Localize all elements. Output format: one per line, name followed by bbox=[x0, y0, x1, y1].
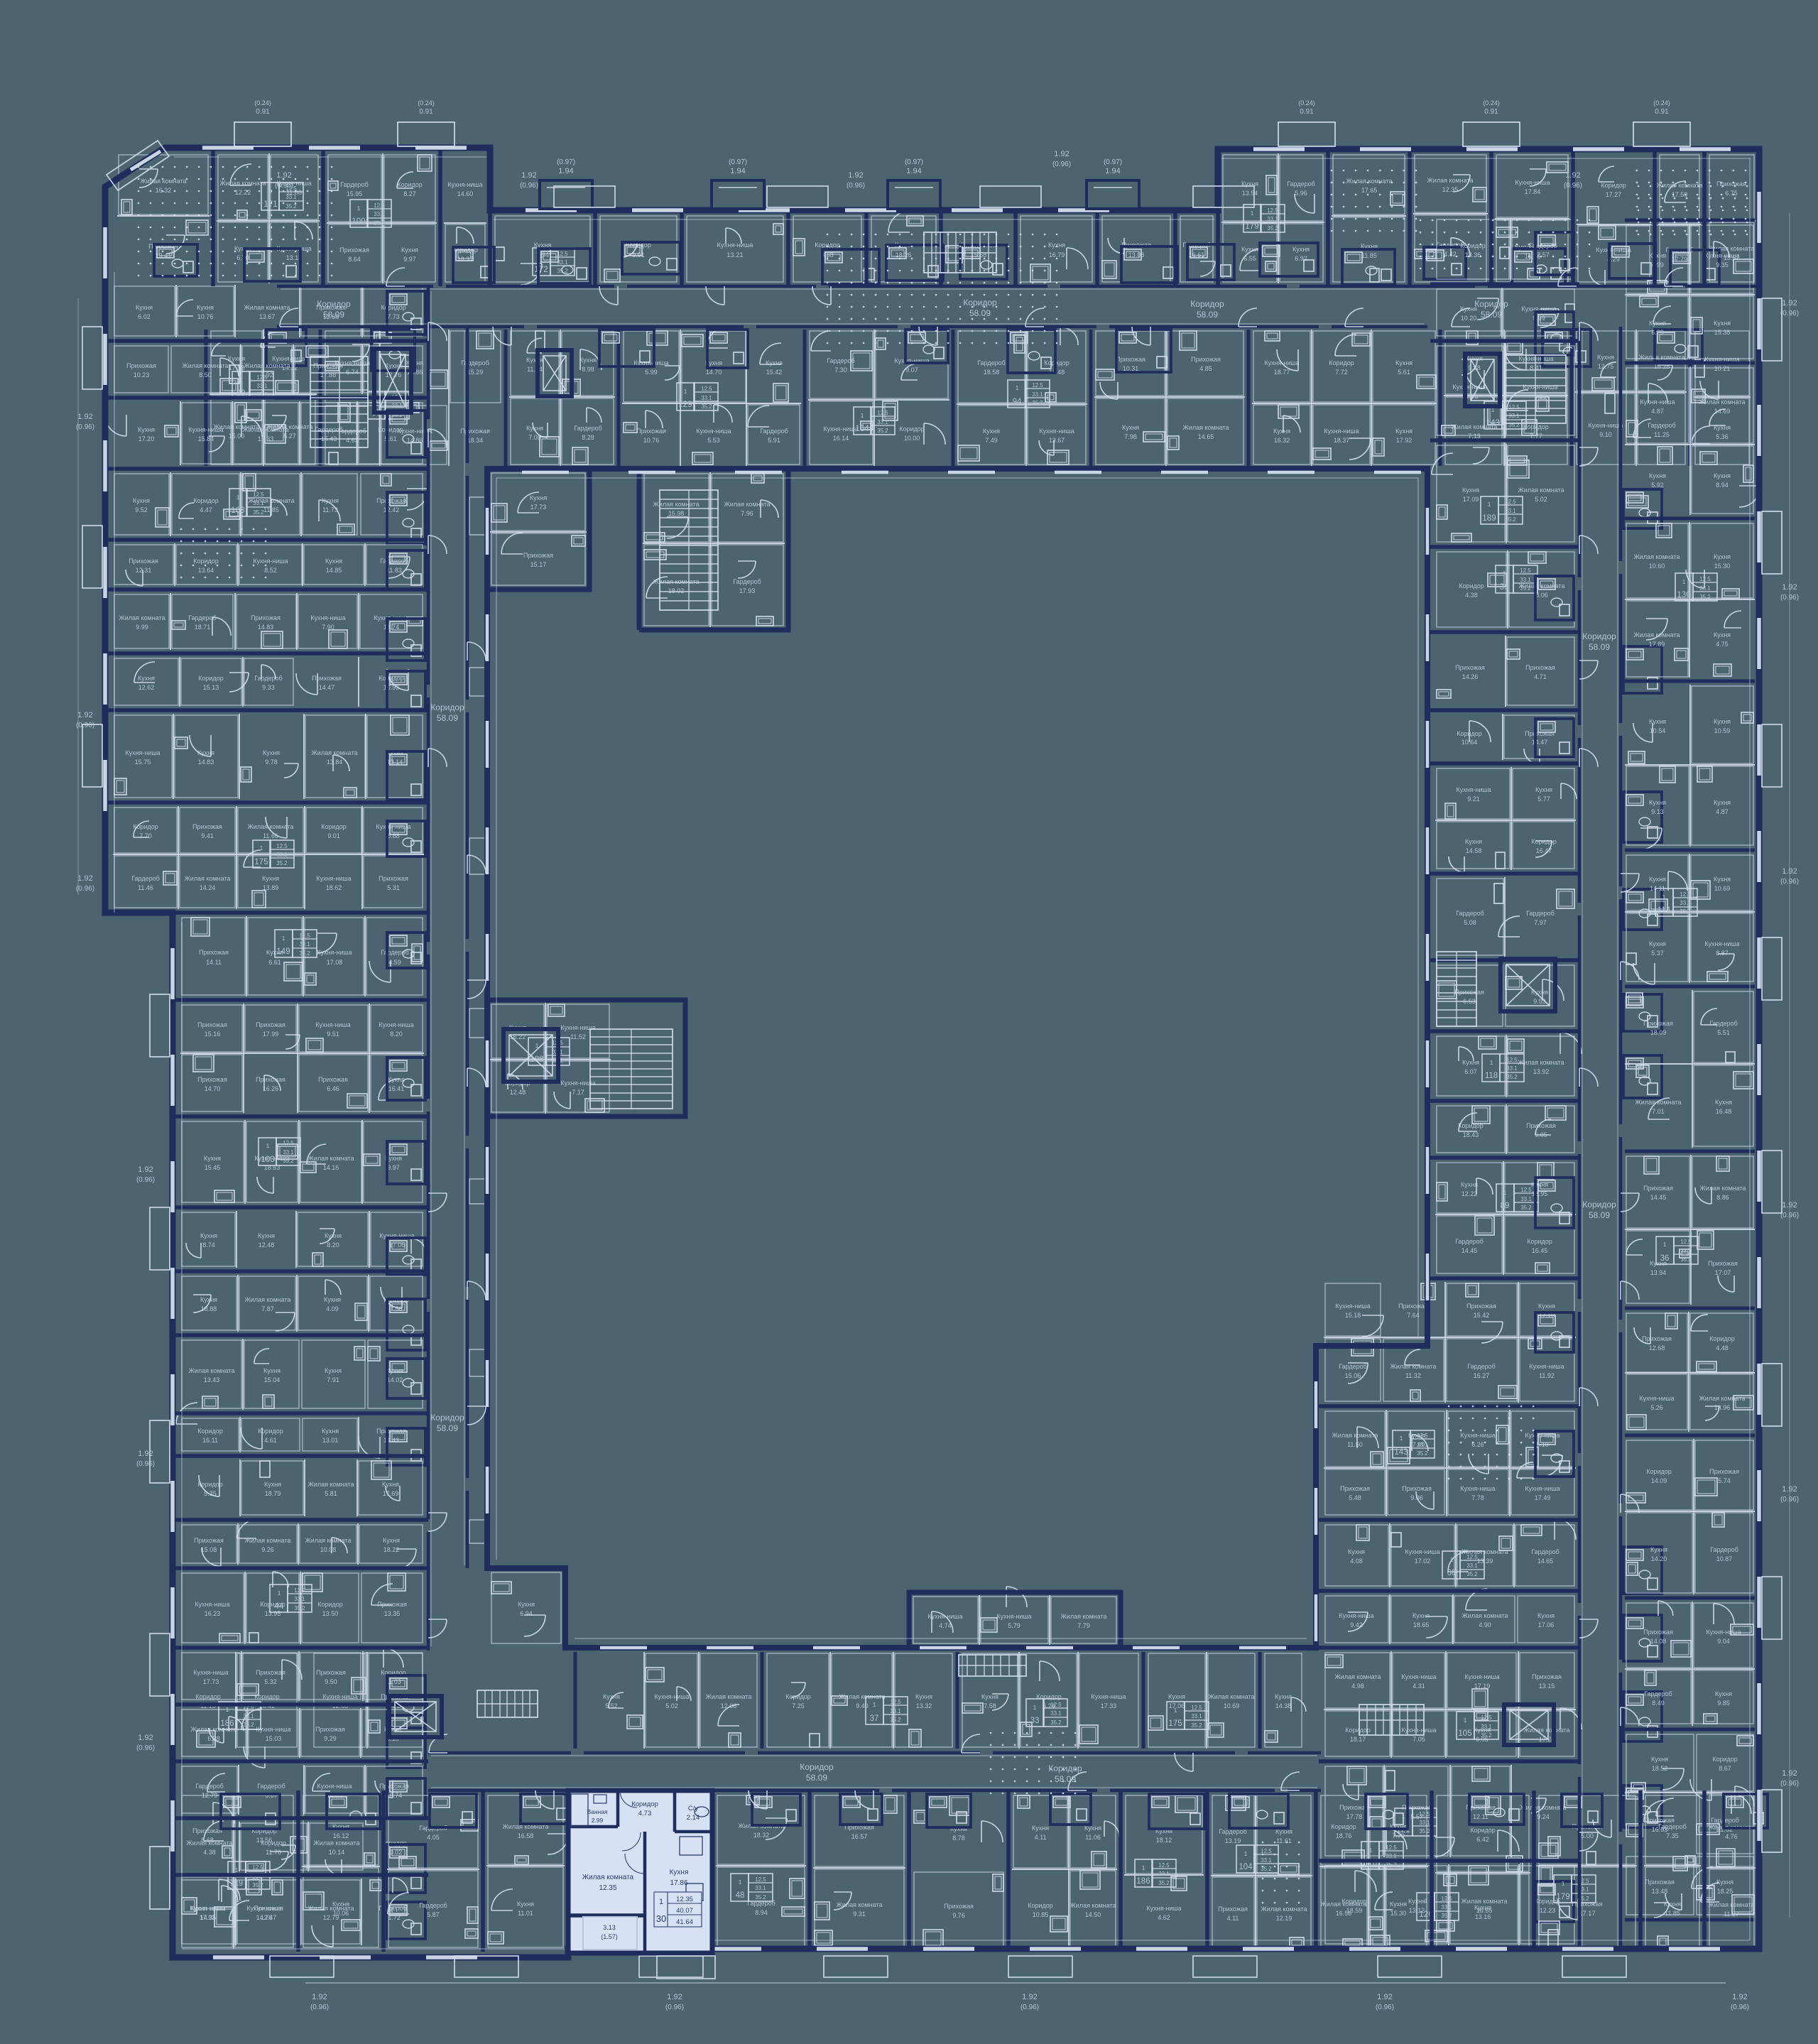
svg-text:1.92: 1.92 bbox=[138, 1734, 153, 1742]
svg-text:13.01: 13.01 bbox=[322, 1437, 339, 1444]
svg-text:33.1: 33.1 bbox=[294, 1596, 305, 1602]
svg-text:Коридор: Коридор bbox=[1646, 1468, 1672, 1475]
svg-text:(0.96): (0.96) bbox=[1376, 2004, 1394, 2011]
svg-text:11.52: 11.52 bbox=[570, 1033, 586, 1040]
svg-text:12.68: 12.68 bbox=[1649, 1344, 1665, 1352]
svg-text:Гардероб: Гардероб bbox=[1467, 1363, 1496, 1370]
svg-text:13.92: 13.92 bbox=[1533, 1068, 1550, 1075]
svg-text:Кухня: Кухня bbox=[262, 875, 279, 882]
svg-text:89: 89 bbox=[1501, 1202, 1510, 1210]
svg-text:8.20: 8.20 bbox=[327, 1241, 339, 1249]
svg-text:9.78: 9.78 bbox=[265, 759, 278, 766]
svg-text:Кухня-ниша: Кухня-ниша bbox=[1146, 1905, 1181, 1912]
svg-text:13.19: 13.19 bbox=[1225, 1837, 1241, 1844]
svg-text:1.92: 1.92 bbox=[667, 1993, 682, 2001]
svg-text:1: 1 bbox=[659, 1898, 663, 1906]
svg-text:17.69: 17.69 bbox=[383, 1490, 399, 1497]
svg-text:13.67: 13.67 bbox=[259, 313, 276, 320]
svg-text:4.71: 4.71 bbox=[1534, 673, 1547, 680]
svg-text:1: 1 bbox=[1503, 570, 1506, 577]
svg-text:Коридор: Коридор bbox=[1048, 1763, 1082, 1773]
svg-text:4.90: 4.90 bbox=[1479, 1621, 1491, 1629]
svg-text:44: 44 bbox=[275, 1602, 284, 1611]
svg-text:7.72: 7.72 bbox=[1335, 369, 1348, 376]
svg-text:Кухня: Кухня bbox=[332, 1901, 349, 1908]
svg-text:18.02: 18.02 bbox=[668, 587, 685, 594]
svg-text:Кухня: Кухня bbox=[579, 357, 597, 364]
svg-text:14.26: 14.26 bbox=[1462, 673, 1479, 680]
svg-text:33.1: 33.1 bbox=[1417, 1442, 1427, 1448]
svg-text:1.92: 1.92 bbox=[1732, 1993, 1747, 2001]
svg-text:7.79: 7.79 bbox=[1077, 1622, 1090, 1629]
svg-text:Коридор: Коридор bbox=[1712, 1756, 1738, 1763]
svg-text:14.24: 14.24 bbox=[200, 884, 216, 891]
svg-text:10.08: 10.08 bbox=[320, 1546, 337, 1553]
svg-text:6.02: 6.02 bbox=[138, 313, 151, 320]
svg-text:Гардероб: Гардероб bbox=[1456, 910, 1484, 917]
svg-text:33.1: 33.1 bbox=[1520, 577, 1530, 583]
svg-text:18.71: 18.71 bbox=[195, 624, 211, 631]
svg-text:Гардероб: Гардероб bbox=[381, 949, 409, 956]
svg-text:Жилая комната: Жилая комната bbox=[1334, 1673, 1381, 1680]
svg-text:129: 129 bbox=[678, 401, 692, 409]
svg-text:5.99: 5.99 bbox=[645, 369, 658, 376]
svg-text:5.92: 5.92 bbox=[1651, 482, 1664, 489]
svg-text:35.2: 35.2 bbox=[374, 220, 384, 227]
svg-text:Кухня: Кухня bbox=[526, 357, 543, 364]
svg-text:8.64: 8.64 bbox=[348, 256, 361, 263]
svg-text:Кухня-ниша: Кухня-ниша bbox=[1456, 786, 1491, 793]
svg-text:33.1: 33.1 bbox=[1680, 900, 1690, 906]
svg-text:Прихожая: Прихожая bbox=[192, 823, 222, 830]
svg-text:Кухня: Кухня bbox=[1715, 1099, 1732, 1106]
svg-text:Кухня: Кухня bbox=[1597, 354, 1614, 361]
svg-text:Коридор: Коридор bbox=[317, 1601, 343, 1608]
svg-text:94: 94 bbox=[1013, 398, 1022, 406]
svg-text:13.50: 13.50 bbox=[322, 1610, 339, 1617]
svg-text:16.45: 16.45 bbox=[1532, 1247, 1548, 1254]
svg-text:Жилая комната: Жилая комната bbox=[307, 1155, 354, 1162]
svg-text:9.40: 9.40 bbox=[856, 1702, 869, 1709]
svg-text:Прихожая: Прихожая bbox=[197, 1021, 227, 1028]
svg-text:4.38: 4.38 bbox=[1465, 592, 1478, 599]
svg-text:Кухня: Кухня bbox=[386, 1367, 403, 1374]
svg-text:5.48: 5.48 bbox=[1349, 1494, 1361, 1501]
svg-text:Жилая комната: Жилая комната bbox=[244, 304, 290, 311]
svg-text:12.5: 12.5 bbox=[1506, 1057, 1518, 1063]
svg-text:33.1: 33.1 bbox=[1158, 1871, 1169, 1877]
svg-text:35.2: 35.2 bbox=[294, 1605, 305, 1611]
svg-text:119: 119 bbox=[230, 1879, 243, 1888]
svg-text:Кухня-ниша: Кухня-ниша bbox=[1464, 1673, 1499, 1680]
svg-text:Прихожая: Прихожая bbox=[256, 1669, 285, 1676]
svg-text:35.2: 35.2 bbox=[1417, 1450, 1427, 1457]
svg-text:Гардероб: Гардероб bbox=[733, 578, 761, 585]
svg-text:Коридор: Коридор bbox=[1190, 299, 1224, 309]
svg-text:5.61: 5.61 bbox=[1398, 369, 1410, 376]
svg-text:4.74: 4.74 bbox=[939, 1622, 952, 1629]
svg-text:9.52: 9.52 bbox=[135, 506, 148, 513]
svg-text:179: 179 bbox=[1245, 222, 1258, 231]
svg-text:114: 114 bbox=[1658, 906, 1671, 915]
svg-text:14.38: 14.38 bbox=[1275, 1702, 1292, 1709]
svg-text:Кухня: Кухня bbox=[1395, 359, 1413, 366]
svg-text:16.48: 16.48 bbox=[1716, 1108, 1732, 1115]
svg-text:Кухня: Кухня bbox=[1649, 799, 1666, 806]
svg-text:Кухня-ниша: Кухня-ниша bbox=[1460, 1432, 1495, 1439]
svg-text:179: 179 bbox=[1556, 1893, 1569, 1901]
svg-text:8.28: 8.28 bbox=[582, 434, 594, 441]
svg-text:Жилая комната: Жилая комната bbox=[188, 1367, 234, 1374]
svg-text:Жилая комната: Жилая комната bbox=[724, 501, 770, 508]
svg-text:Кухня: Кухня bbox=[138, 426, 155, 433]
svg-text:11.66: 11.66 bbox=[263, 832, 278, 839]
svg-text:10.87: 10.87 bbox=[1716, 1555, 1733, 1562]
svg-text:12.5: 12.5 bbox=[1386, 1844, 1397, 1851]
svg-text:Кухня-ниша: Кухня-ниша bbox=[1460, 1485, 1495, 1492]
svg-text:Жилая комната: Жилая комната bbox=[119, 614, 165, 621]
svg-text:58.09: 58.09 bbox=[1197, 310, 1218, 320]
svg-text:11.83: 11.83 bbox=[386, 567, 402, 574]
svg-text:6.74: 6.74 bbox=[346, 369, 359, 376]
svg-text:1: 1 bbox=[684, 388, 687, 395]
svg-text:12.62: 12.62 bbox=[138, 684, 155, 691]
svg-text:4.42: 4.42 bbox=[1444, 251, 1457, 258]
svg-text:10.21: 10.21 bbox=[1714, 365, 1731, 372]
svg-text:8.52: 8.52 bbox=[264, 567, 277, 574]
svg-text:6.61: 6.61 bbox=[268, 959, 281, 966]
svg-text:189: 189 bbox=[1482, 514, 1496, 523]
svg-text:100: 100 bbox=[352, 217, 365, 226]
svg-text:10.00: 10.00 bbox=[904, 435, 920, 442]
svg-text:33.1: 33.1 bbox=[1267, 216, 1278, 222]
svg-text:Прихожая: Прихожая bbox=[192, 1827, 222, 1834]
svg-text:Прихожая: Прихожая bbox=[1454, 989, 1484, 996]
svg-text:15.16: 15.16 bbox=[205, 1031, 221, 1038]
svg-text:33.1: 33.1 bbox=[1505, 508, 1515, 514]
svg-text:(0.96): (0.96) bbox=[136, 1460, 155, 1468]
svg-text:Жилая комната: Жилая комната bbox=[1635, 1099, 1681, 1106]
svg-text:Прихожая: Прихожая bbox=[1642, 1335, 1672, 1342]
svg-text:2.99: 2.99 bbox=[592, 1817, 604, 1824]
svg-text:Прихожая: Прихожая bbox=[339, 246, 369, 254]
svg-text:0.91: 0.91 bbox=[1484, 108, 1498, 116]
svg-text:Коридор: Коридор bbox=[1523, 423, 1549, 430]
svg-text:33.1: 33.1 bbox=[1481, 1724, 1491, 1730]
svg-text:7.57: 7.57 bbox=[1537, 251, 1550, 259]
svg-text:Прихожая: Прихожая bbox=[1643, 1629, 1673, 1636]
svg-text:14.60: 14.60 bbox=[457, 190, 474, 197]
svg-text:14.70: 14.70 bbox=[706, 369, 722, 376]
svg-text:Кухня-ниша: Кухня-ниша bbox=[1704, 940, 1739, 947]
svg-text:5.79: 5.79 bbox=[1008, 1622, 1020, 1629]
svg-text:1: 1 bbox=[1369, 1847, 1373, 1854]
svg-text:Жилая комната: Жилая комната bbox=[313, 1839, 359, 1847]
svg-text:Жилая комната: Жилая комната bbox=[184, 875, 230, 882]
svg-text:7.17: 7.17 bbox=[572, 1089, 584, 1096]
svg-text:11.06: 11.06 bbox=[1085, 1834, 1101, 1841]
svg-text:13.54: 13.54 bbox=[1242, 190, 1258, 197]
svg-text:Кухня-ниша: Кухня-ниша bbox=[125, 749, 160, 756]
svg-text:11.32: 11.32 bbox=[1405, 1372, 1421, 1379]
svg-text:Жилая комната: Жилая комната bbox=[1518, 486, 1564, 494]
svg-text:Кухня: Кухня bbox=[1122, 424, 1139, 431]
svg-text:40.07: 40.07 bbox=[676, 1907, 693, 1915]
svg-text:Кухня-ниша: Кухня-ниша bbox=[190, 1905, 224, 1912]
svg-text:1: 1 bbox=[861, 412, 864, 419]
svg-text:12.5: 12.5 bbox=[1419, 1811, 1430, 1817]
svg-text:35.2: 35.2 bbox=[1158, 1880, 1169, 1886]
svg-text:Прихожая: Прихожая bbox=[379, 875, 408, 882]
svg-text:33.1: 33.1 bbox=[299, 941, 310, 947]
svg-text:Кухня-ниша: Кухня-ниша bbox=[1515, 179, 1550, 186]
svg-text:1: 1 bbox=[1562, 1880, 1565, 1887]
svg-text:10.69: 10.69 bbox=[1224, 1702, 1240, 1709]
svg-text:33.1: 33.1 bbox=[1680, 1248, 1691, 1254]
svg-text:Прихожая: Прихожая bbox=[1191, 356, 1221, 363]
svg-text:Коридор: Коридор bbox=[800, 1762, 834, 1772]
svg-text:Коридор: Коридор bbox=[430, 702, 464, 712]
svg-text:Прихожая: Прихожая bbox=[1532, 1673, 1562, 1680]
svg-text:Кухня: Кухня bbox=[1714, 472, 1731, 479]
svg-text:(0.97): (0.97) bbox=[905, 158, 923, 166]
svg-text:13.95: 13.95 bbox=[265, 1610, 281, 1617]
svg-text:Кухня-ниша: Кухня-ниша bbox=[379, 1021, 413, 1028]
svg-text:9.85: 9.85 bbox=[1717, 1700, 1730, 1707]
svg-text:10.76: 10.76 bbox=[197, 313, 214, 320]
svg-text:1: 1 bbox=[1662, 893, 1666, 901]
svg-text:Коридор: Коридор bbox=[197, 1428, 223, 1435]
svg-text:17.89: 17.89 bbox=[1649, 641, 1665, 648]
svg-text:Кухня: Кухня bbox=[382, 1481, 399, 1488]
svg-text:5.91: 5.91 bbox=[768, 437, 780, 444]
svg-text:14.20: 14.20 bbox=[1651, 1555, 1667, 1562]
svg-text:15.29: 15.29 bbox=[467, 369, 484, 376]
svg-text:Кухня-ниша: Кухня-ниша bbox=[317, 1783, 352, 1790]
svg-text:18.76: 18.76 bbox=[1336, 1832, 1352, 1839]
svg-text:13.94: 13.94 bbox=[1650, 1269, 1667, 1276]
svg-text:4.85: 4.85 bbox=[1199, 365, 1212, 372]
svg-text:4.73: 4.73 bbox=[638, 1810, 652, 1817]
svg-text:172: 172 bbox=[534, 266, 548, 274]
svg-text:4.11: 4.11 bbox=[1035, 1834, 1047, 1841]
svg-text:1.92: 1.92 bbox=[138, 1165, 153, 1174]
svg-text:36: 36 bbox=[1660, 1254, 1670, 1263]
svg-text:17.99: 17.99 bbox=[263, 1031, 279, 1038]
svg-text:2.14: 2.14 bbox=[687, 1814, 700, 1822]
svg-text:(0.96): (0.96) bbox=[1052, 161, 1071, 168]
svg-text:Кухня: Кухня bbox=[136, 304, 153, 311]
svg-text:1: 1 bbox=[1490, 1059, 1493, 1066]
svg-text:35.2: 35.2 bbox=[1506, 1074, 1517, 1080]
svg-text:Жилая комната: Жилая комната bbox=[1261, 1906, 1307, 1913]
svg-text:9.29: 9.29 bbox=[324, 1735, 337, 1742]
svg-text:7.35: 7.35 bbox=[1666, 1832, 1679, 1839]
svg-text:8.94: 8.94 bbox=[755, 1909, 768, 1916]
svg-text:33.1: 33.1 bbox=[755, 1885, 766, 1891]
svg-text:5.31: 5.31 bbox=[387, 884, 400, 891]
svg-text:16.12: 16.12 bbox=[333, 1832, 349, 1839]
svg-text:12.5: 12.5 bbox=[701, 386, 712, 392]
svg-text:18.17: 18.17 bbox=[1350, 1736, 1366, 1743]
svg-text:1: 1 bbox=[266, 1142, 270, 1149]
svg-text:15.03: 15.03 bbox=[266, 1735, 282, 1742]
svg-text:15.42: 15.42 bbox=[1474, 1312, 1490, 1319]
svg-text:Кухня: Кухня bbox=[1273, 428, 1290, 435]
svg-text:4.62: 4.62 bbox=[1158, 1914, 1170, 1921]
svg-text:Кухня: Кухня bbox=[325, 1367, 342, 1374]
svg-text:33.1: 33.1 bbox=[276, 852, 287, 858]
svg-text:13.35: 13.35 bbox=[384, 1610, 401, 1617]
svg-text:4.48: 4.48 bbox=[1716, 1344, 1729, 1352]
svg-text:Кухня: Кухня bbox=[401, 246, 418, 254]
svg-text:0.91: 0.91 bbox=[256, 108, 270, 116]
svg-text:Кухня: Кухня bbox=[1168, 1693, 1185, 1700]
svg-text:Кухня: Кухня bbox=[1649, 472, 1666, 479]
svg-text:12.5: 12.5 bbox=[276, 843, 288, 849]
svg-text:Кухня-ниша: Кухня-ниша bbox=[253, 558, 288, 565]
svg-text:18.32: 18.32 bbox=[753, 1832, 770, 1839]
svg-text:35.2: 35.2 bbox=[1680, 1256, 1691, 1263]
svg-text:12.5: 12.5 bbox=[1505, 499, 1516, 505]
svg-text:Кухня: Кухня bbox=[915, 1693, 932, 1700]
svg-text:14.02: 14.02 bbox=[387, 1376, 403, 1383]
svg-text:9.41: 9.41 bbox=[201, 832, 214, 839]
svg-text:(0.97): (0.97) bbox=[729, 158, 747, 166]
svg-text:7.87: 7.87 bbox=[261, 1305, 274, 1312]
svg-text:Кухня: Кухня bbox=[325, 558, 342, 565]
svg-text:15.98: 15.98 bbox=[668, 510, 685, 517]
svg-text:1: 1 bbox=[1450, 1556, 1454, 1563]
svg-text:Гардероб: Гардероб bbox=[1287, 180, 1315, 187]
svg-text:12.35: 12.35 bbox=[676, 1896, 693, 1903]
svg-text:4.09: 4.09 bbox=[326, 1305, 339, 1312]
svg-text:17.08: 17.08 bbox=[327, 959, 343, 966]
svg-text:18.12: 18.12 bbox=[1156, 1837, 1172, 1844]
svg-text:Кухня-ниша: Кухня-ниша bbox=[1324, 428, 1359, 435]
svg-text:13.36: 13.36 bbox=[1465, 251, 1481, 259]
svg-text:14.08: 14.08 bbox=[1650, 1638, 1667, 1645]
svg-text:5.02: 5.02 bbox=[665, 1702, 678, 1709]
svg-text:17.86: 17.86 bbox=[670, 1879, 687, 1887]
svg-text:Гардероб: Гардероб bbox=[1531, 1548, 1560, 1555]
svg-text:Жилая комната: Жилая комната bbox=[1208, 1693, 1254, 1700]
svg-text:16.79: 16.79 bbox=[1049, 251, 1065, 259]
svg-text:1.92: 1.92 bbox=[77, 413, 92, 421]
svg-text:130: 130 bbox=[1677, 591, 1690, 599]
svg-text:Кухня: Кухня bbox=[197, 304, 214, 311]
svg-text:12.5: 12.5 bbox=[1261, 1848, 1272, 1854]
svg-text:10.54: 10.54 bbox=[1650, 727, 1666, 734]
svg-text:Гардероб: Гардероб bbox=[254, 675, 283, 682]
svg-text:16.27: 16.27 bbox=[1474, 1372, 1490, 1379]
svg-text:9.26: 9.26 bbox=[261, 1546, 274, 1553]
svg-text:4.05: 4.05 bbox=[427, 1834, 440, 1841]
svg-text:35.2: 35.2 bbox=[1520, 585, 1530, 592]
svg-text:Прихожая: Прихожая bbox=[1708, 1260, 1738, 1267]
svg-text:14.09: 14.09 bbox=[1651, 1477, 1667, 1484]
svg-text:9.01: 9.01 bbox=[327, 832, 340, 839]
svg-text:0.91: 0.91 bbox=[419, 108, 433, 116]
svg-text:149: 149 bbox=[276, 947, 290, 956]
svg-text:Коридор: Коридор bbox=[1331, 1823, 1356, 1830]
svg-text:Кухня-ниша: Кухня-ниша bbox=[1039, 428, 1074, 435]
svg-text:Кухня: Кухня bbox=[1714, 799, 1731, 806]
svg-text:18.58: 18.58 bbox=[984, 369, 1000, 376]
svg-text:5.77: 5.77 bbox=[1537, 795, 1550, 803]
svg-text:11.34: 11.34 bbox=[527, 366, 543, 373]
svg-text:18.62: 18.62 bbox=[326, 884, 342, 891]
svg-text:Прихожая: Прихожая bbox=[313, 362, 343, 369]
svg-text:15.30: 15.30 bbox=[1390, 1910, 1407, 1917]
svg-text:7.25: 7.25 bbox=[792, 1702, 805, 1709]
svg-text:Гардероб: Гардероб bbox=[1644, 1690, 1672, 1697]
svg-text:10.59: 10.59 bbox=[1714, 727, 1731, 734]
svg-text:(0.96): (0.96) bbox=[136, 1176, 155, 1184]
svg-text:Жилая комната: Жилая комната bbox=[1638, 354, 1684, 361]
svg-text:Прихожая: Прихожая bbox=[1218, 1906, 1248, 1913]
svg-text:143: 143 bbox=[1394, 1448, 1408, 1457]
svg-text:7.58: 7.58 bbox=[984, 1702, 996, 1709]
svg-text:33.1: 33.1 bbox=[253, 500, 263, 506]
svg-text:12.06: 12.06 bbox=[721, 1702, 737, 1709]
svg-text:Жилая комната: Жилая комната bbox=[244, 1296, 290, 1303]
svg-text:103: 103 bbox=[261, 1156, 274, 1164]
svg-text:17.73: 17.73 bbox=[530, 504, 547, 511]
svg-text:9.51: 9.51 bbox=[327, 1031, 339, 1038]
svg-text:Кухня: Кухня bbox=[1649, 718, 1666, 725]
svg-text:118: 118 bbox=[1485, 1072, 1498, 1080]
svg-text:Коридор: Коридор bbox=[321, 823, 347, 830]
svg-text:1.94: 1.94 bbox=[1105, 167, 1120, 175]
svg-text:Жилая комната: Жилая комната bbox=[1332, 1432, 1378, 1439]
svg-text:13.67: 13.67 bbox=[1049, 437, 1065, 444]
svg-text:12.48: 12.48 bbox=[510, 1089, 526, 1096]
svg-text:68: 68 bbox=[1447, 1569, 1457, 1577]
svg-text:12.22: 12.22 bbox=[1462, 1190, 1478, 1197]
svg-text:9.13: 9.13 bbox=[1651, 808, 1664, 815]
svg-text:Прихожая: Прихожая bbox=[256, 1021, 285, 1028]
svg-text:Жилая комната: Жилая комната bbox=[1069, 1902, 1116, 1909]
svg-text:7.49: 7.49 bbox=[985, 437, 998, 444]
svg-text:Гардероб: Гардероб bbox=[1648, 422, 1676, 429]
svg-text:Жилая комната: Жилая комната bbox=[1523, 1727, 1569, 1734]
svg-text:12.5: 12.5 bbox=[283, 1140, 294, 1146]
svg-text:12.5: 12.5 bbox=[1158, 1862, 1170, 1869]
svg-text:12.5: 12.5 bbox=[294, 1587, 305, 1594]
svg-text:33.1: 33.1 bbox=[1520, 1196, 1531, 1202]
svg-text:Кухня-ниша: Кухня-ниша bbox=[188, 426, 223, 433]
svg-text:15.95: 15.95 bbox=[347, 190, 363, 197]
svg-text:4.75: 4.75 bbox=[1716, 641, 1729, 648]
svg-text:1.92: 1.92 bbox=[77, 711, 92, 719]
svg-text:35.2: 35.2 bbox=[1050, 1719, 1061, 1726]
svg-text:10.60: 10.60 bbox=[1649, 562, 1665, 570]
svg-text:Коридор: Коридор bbox=[198, 675, 224, 682]
svg-text:16.26: 16.26 bbox=[263, 1085, 279, 1092]
svg-text:58.09: 58.09 bbox=[1589, 642, 1610, 652]
svg-text:Прихожая: Прихожая bbox=[315, 1726, 345, 1733]
svg-text:Кухня: Кухня bbox=[1535, 786, 1552, 793]
svg-text:Коридор: Коридор bbox=[193, 497, 219, 504]
svg-text:16.32: 16.32 bbox=[1274, 437, 1290, 444]
svg-text:Коридор: Коридор bbox=[1531, 838, 1557, 845]
svg-text:33.1: 33.1 bbox=[1261, 1857, 1271, 1864]
svg-text:Кухня: Кухня bbox=[670, 1869, 689, 1876]
svg-text:14.83: 14.83 bbox=[198, 759, 214, 766]
svg-text:35.2: 35.2 bbox=[1466, 1571, 1477, 1577]
svg-text:Кухня: Кухня bbox=[1714, 718, 1731, 725]
